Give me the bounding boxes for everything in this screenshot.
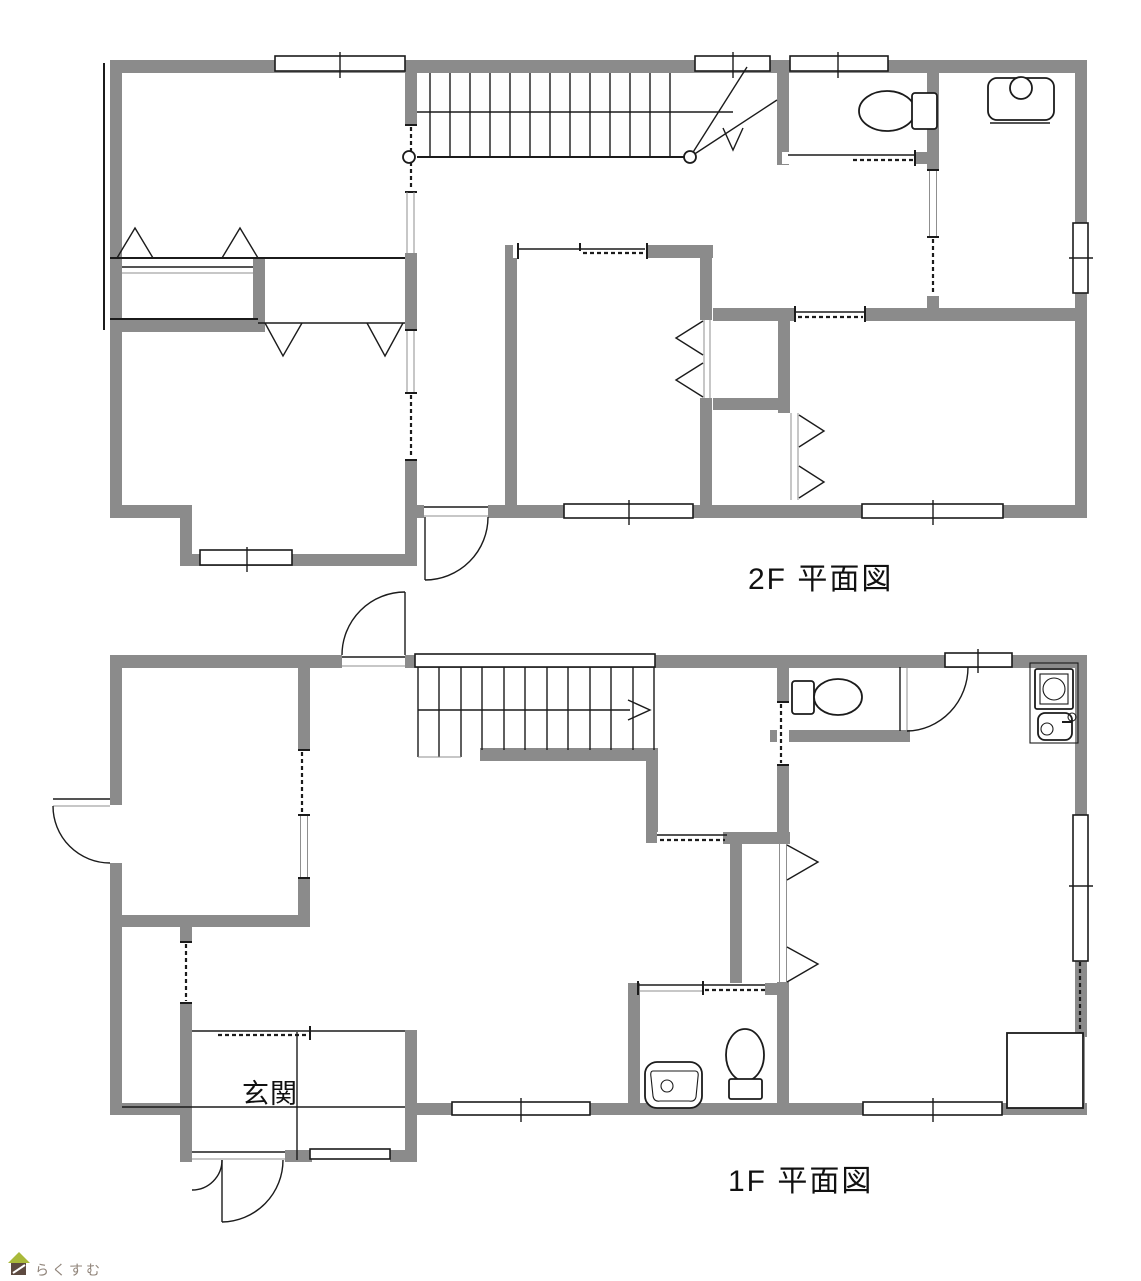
entrance-label: 玄関 bbox=[242, 1079, 298, 1109]
stairs-up-arrow-icon bbox=[628, 700, 650, 720]
door-arc-icon bbox=[907, 667, 968, 731]
stairs-down-arrow-icon bbox=[723, 128, 743, 150]
floor-1f: 玄関 1F 平面図 bbox=[53, 592, 1093, 1222]
door-arc-icon bbox=[192, 1160, 222, 1190]
toilet-icon bbox=[859, 91, 937, 131]
folding-door-icon bbox=[799, 466, 824, 498]
floorplan-page: 2F 平面図 bbox=[0, 0, 1141, 1281]
kitchenette-icon bbox=[1030, 663, 1078, 743]
floor-1f-label: 1F 平面図 bbox=[728, 1165, 873, 1198]
walls-2f bbox=[110, 60, 1087, 566]
door-1f-left bbox=[53, 799, 122, 863]
floor-2f-label: 2F 平面図 bbox=[748, 563, 893, 596]
folding-door-icon bbox=[222, 228, 258, 258]
sliding-doors-2f bbox=[405, 125, 939, 460]
toilet-icon bbox=[726, 1029, 764, 1099]
closet-doors-1f bbox=[780, 843, 819, 983]
entrance-area: 玄関 bbox=[122, 1032, 405, 1160]
toilet-icon bbox=[792, 679, 862, 715]
door-2f-hall bbox=[424, 505, 488, 580]
floor-2f: 2F 平面図 bbox=[104, 52, 1093, 596]
door-1f-top bbox=[342, 592, 405, 668]
door-arc-icon bbox=[342, 592, 405, 655]
door-1f-hall bbox=[900, 667, 968, 731]
folding-door-icon bbox=[787, 845, 818, 880]
door-arc-icon bbox=[425, 517, 488, 580]
vanity-sink-icon bbox=[988, 77, 1054, 123]
folding-door-icon bbox=[367, 323, 403, 356]
folding-door-icon bbox=[265, 323, 302, 356]
folding-door-icon bbox=[117, 228, 153, 258]
folding-door-icon bbox=[676, 363, 703, 397]
folding-door-icon bbox=[799, 415, 824, 447]
site-logo: らくすむ bbox=[8, 1252, 103, 1278]
house-logo-icon bbox=[8, 1252, 30, 1263]
door-arc-icon bbox=[222, 1160, 283, 1222]
folding-door-icon bbox=[676, 321, 703, 355]
door-arc-icon bbox=[53, 806, 110, 863]
entry-double-door bbox=[192, 1150, 285, 1222]
washbasin-icon bbox=[645, 1062, 702, 1108]
folding-door-icon bbox=[787, 947, 818, 982]
stairs-1f-icon bbox=[418, 667, 654, 757]
logo-text: らくすむ bbox=[35, 1262, 103, 1278]
stairs-2f-icon bbox=[403, 67, 777, 163]
floorplan-drawing: 2F 平面図 bbox=[0, 0, 1141, 1281]
counter-box bbox=[1007, 1033, 1083, 1108]
